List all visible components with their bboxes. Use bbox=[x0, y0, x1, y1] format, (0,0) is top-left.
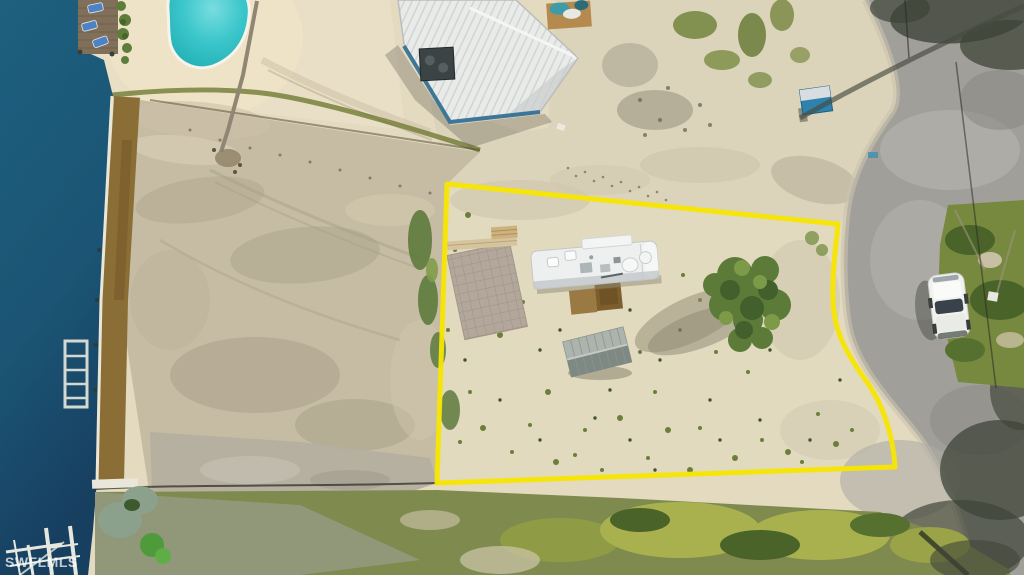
utility-box bbox=[987, 291, 998, 302]
sun-deck bbox=[78, 0, 119, 57]
aerial-photo: SWFLMLS bbox=[0, 0, 1024, 575]
canal-water bbox=[0, 0, 113, 575]
photo-svg bbox=[0, 0, 1024, 575]
ac-unit bbox=[419, 47, 455, 81]
mls-watermark: SWFLMLS bbox=[5, 554, 78, 570]
boat-on-pallet bbox=[546, 0, 592, 30]
